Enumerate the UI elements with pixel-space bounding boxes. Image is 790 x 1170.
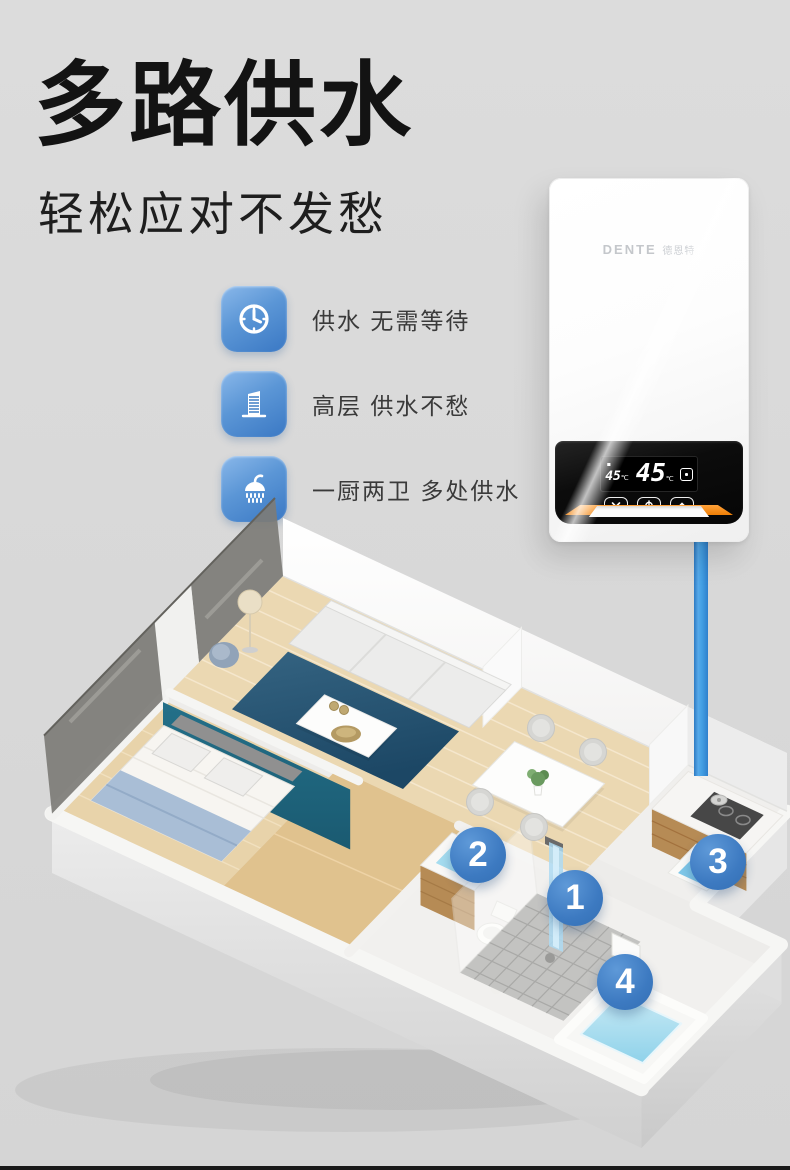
section-divider: [0, 1166, 790, 1170]
water-pipe: [694, 532, 708, 776]
control-panel: 45℃ 45℃: [555, 441, 743, 524]
supply-point-marker-bathtub: 4: [597, 954, 653, 1010]
heat-mode-icon: [680, 468, 693, 481]
supply-point-marker-basin: 2: [450, 827, 506, 883]
indicator-dots-icon: [607, 463, 615, 466]
current-temperature: 45℃: [636, 462, 674, 486]
set-temperature: 45℃: [605, 463, 629, 485]
supply-point-marker-shower: 1: [547, 870, 603, 926]
brand-name-cn: 德恩特: [662, 246, 695, 257]
brand-logo: DENTE 德恩特: [549, 242, 749, 257]
floor-plan-illustration: [0, 0, 790, 1170]
brand-name: DENTE: [603, 242, 657, 257]
promo-page: DENTE 德恩特 45℃ 45℃: [0, 0, 790, 1170]
supply-point-marker-kitchen-sink: 3: [690, 834, 746, 890]
water-heater: DENTE 德恩特 45℃ 45℃: [549, 178, 749, 542]
bottom-lip: [579, 506, 719, 517]
temperature-display: 45℃ 45℃: [600, 456, 698, 492]
